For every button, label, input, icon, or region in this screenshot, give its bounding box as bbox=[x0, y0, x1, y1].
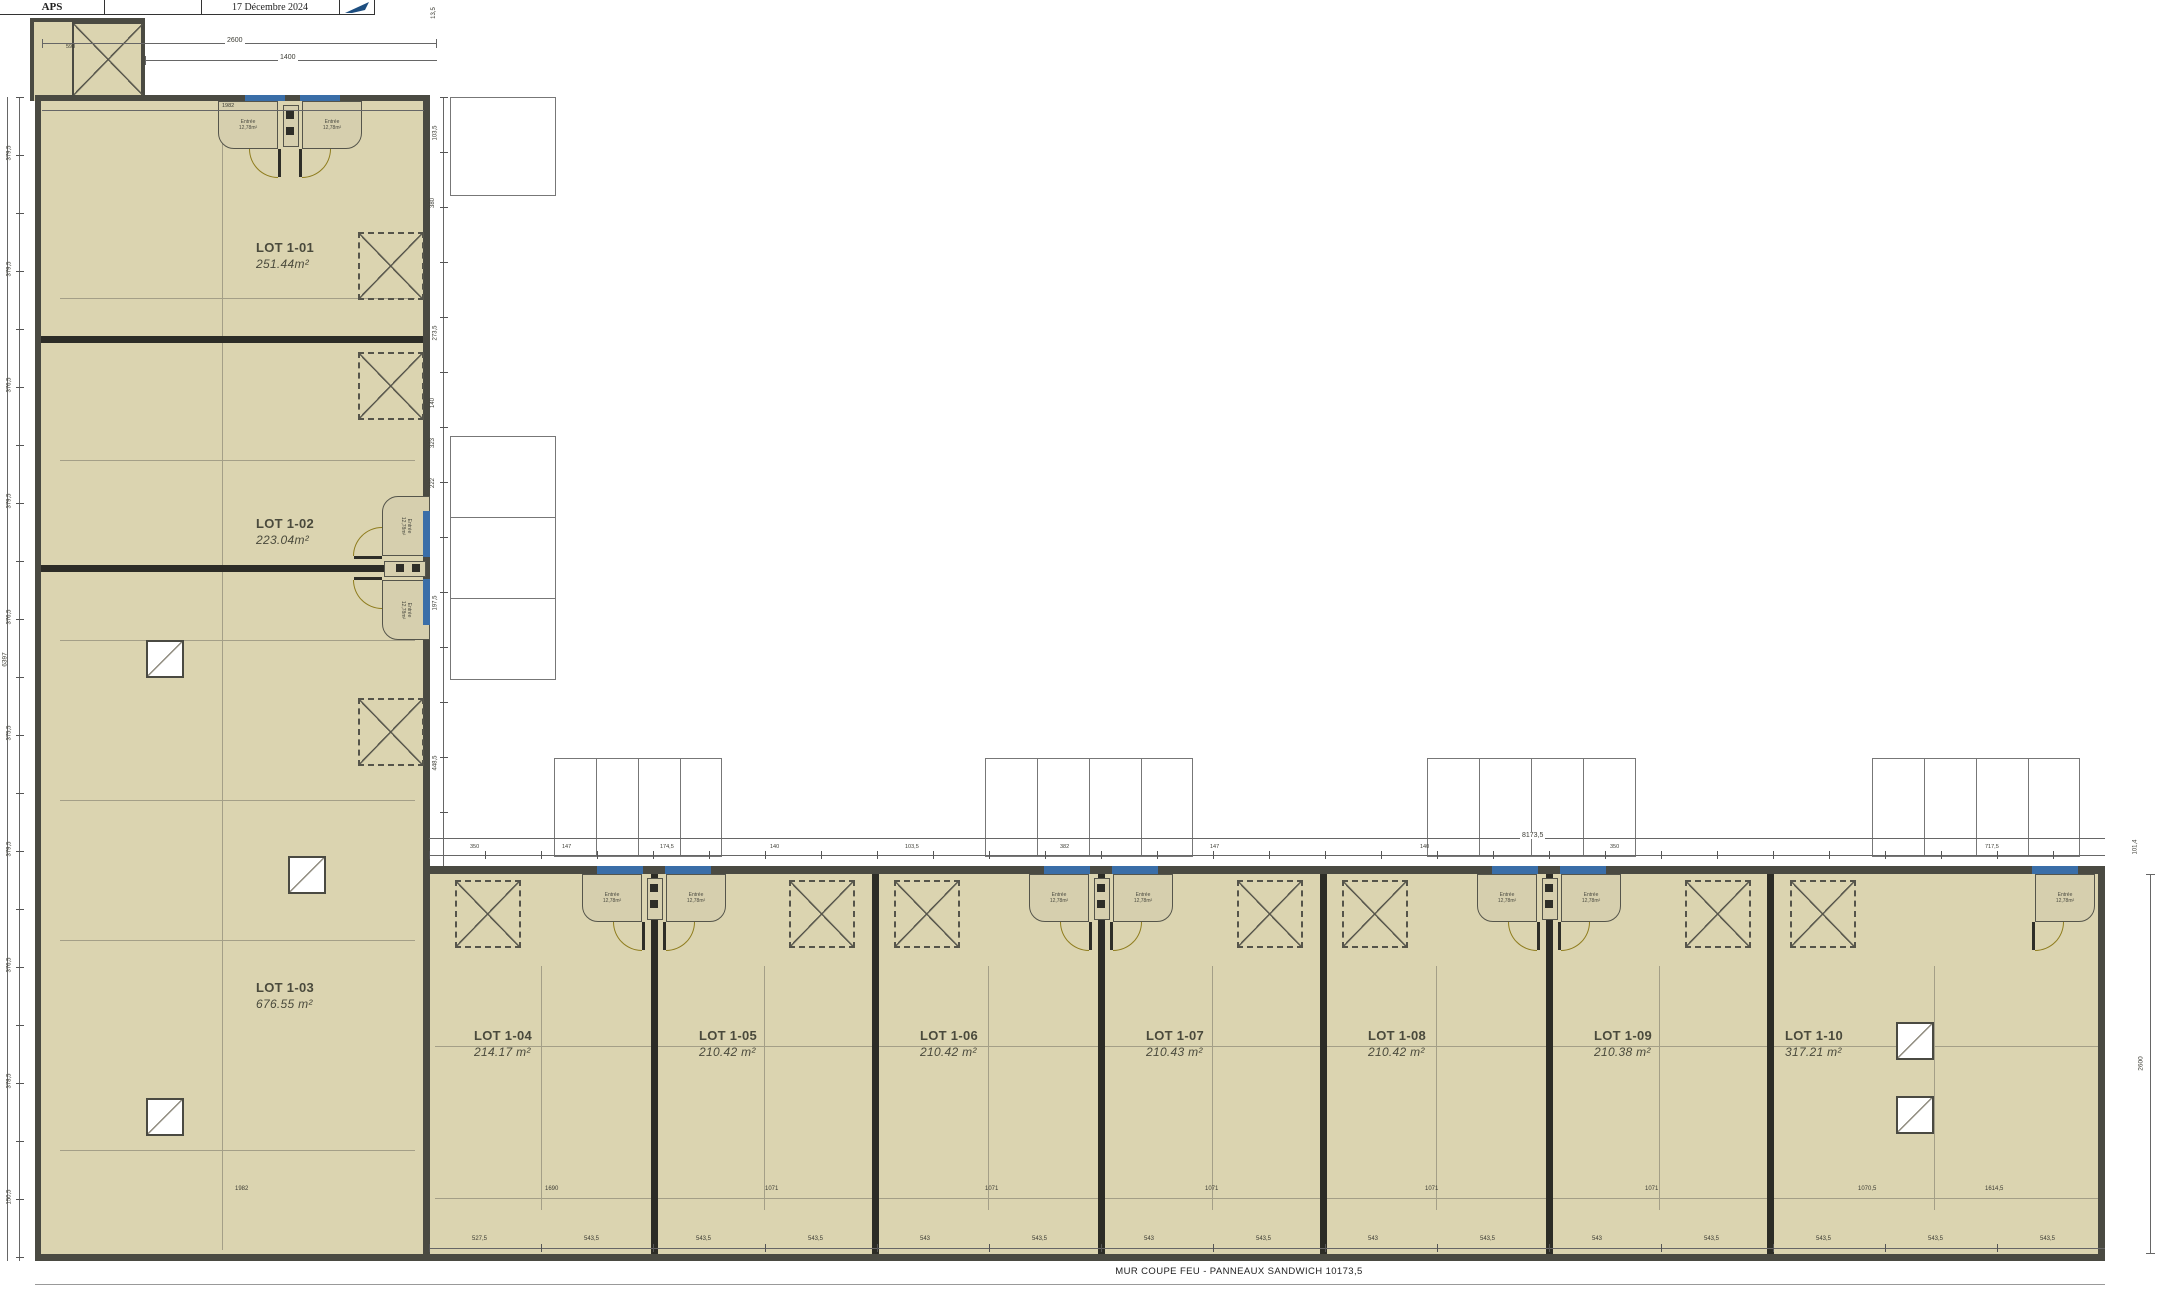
sectional-door-lot01 bbox=[358, 232, 424, 300]
dim-chain: 543,5 bbox=[1256, 1236, 1271, 1242]
sectional-door-lot06 bbox=[894, 880, 960, 948]
wall-east bbox=[2098, 866, 2105, 1261]
dim-chain: 197,5 bbox=[433, 595, 439, 610]
dim-chain: 103,5 bbox=[433, 125, 439, 140]
dim-left-total: 6397 bbox=[2, 652, 9, 666]
glazed-door-strip bbox=[1044, 866, 1090, 874]
entry-room: Entrée12,78m² bbox=[302, 101, 362, 149]
door-leaf bbox=[642, 922, 645, 950]
door-swing-arc bbox=[666, 922, 695, 951]
titleblock-border bbox=[0, 14, 375, 15]
dim-line bbox=[2150, 874, 2151, 1254]
canopy-box bbox=[1872, 758, 2080, 857]
entry-room: Entrée12,78m² bbox=[1029, 874, 1089, 922]
glazed-door-strip bbox=[1112, 866, 1158, 874]
dim-inner: 1690 bbox=[545, 1186, 558, 1192]
dim-tick bbox=[2146, 1253, 2155, 1254]
glazed-door-strip bbox=[1492, 866, 1538, 874]
dim-chain: 543 bbox=[1368, 1236, 1378, 1242]
dim-chain: 380 bbox=[430, 198, 436, 208]
door-leaf bbox=[1089, 922, 1092, 950]
lot-label-07: LOT 1-07210.43 m² bbox=[1146, 1028, 1204, 1060]
door-jamb bbox=[1097, 900, 1105, 908]
grid-line bbox=[60, 800, 415, 801]
entry-room: Entrée12,78m² bbox=[582, 874, 642, 922]
dim-chain: 543 bbox=[1144, 1236, 1154, 1242]
lot-label-10: LOT 1-10317.21 m² bbox=[1785, 1028, 1843, 1060]
glazed-door-strip bbox=[2032, 866, 2078, 874]
door-jamb bbox=[412, 564, 420, 572]
door-leaf bbox=[1110, 922, 1113, 950]
dim-tick bbox=[145, 56, 146, 65]
door-swing-arc bbox=[1113, 922, 1142, 951]
entry-room: Entrée12,78m² bbox=[1477, 874, 1537, 922]
dim-chain: 527,5 bbox=[472, 1236, 487, 1242]
porch-door-x-box bbox=[72, 22, 145, 97]
porch-wall bbox=[30, 18, 34, 101]
firewall-lot01-02 bbox=[41, 336, 423, 343]
dim-inner: 1071 bbox=[765, 1186, 778, 1192]
grid-line bbox=[435, 1198, 2098, 1199]
sectional-door-lot02 bbox=[358, 352, 424, 420]
dim-left-seg: 150,5 bbox=[7, 1189, 13, 1204]
dim-chain: 543 bbox=[1592, 1236, 1602, 1242]
door-jamb bbox=[396, 564, 404, 572]
dim-chain: 543,5 bbox=[808, 1236, 823, 1242]
dim-chain: 448,5 bbox=[433, 755, 439, 770]
wall-wing-east bbox=[423, 95, 430, 1261]
entry-room: Entrée12,78m² bbox=[1561, 874, 1621, 922]
dim-corner: 13,5 bbox=[431, 7, 437, 19]
roof-hatch bbox=[146, 1098, 184, 1136]
door-jamb bbox=[1097, 884, 1105, 892]
glazed-door-strip bbox=[300, 95, 340, 101]
dim-chain: 147 bbox=[562, 844, 571, 850]
canopy-box bbox=[985, 758, 1193, 857]
dim-wing-bottom: 1982 bbox=[235, 1186, 248, 1192]
dim-chain: 140 bbox=[430, 398, 436, 408]
dim-row-total: 8173,5 bbox=[1520, 832, 1545, 839]
firewall-lot07-08 bbox=[1320, 874, 1327, 1254]
phase-label: APS bbox=[0, 0, 104, 14]
grid-line bbox=[764, 966, 765, 1210]
sectional-door-lot03 bbox=[358, 698, 424, 766]
grid-line bbox=[60, 940, 415, 941]
dim-left-seg: 379,5 bbox=[7, 145, 13, 160]
glazed-door-strip bbox=[245, 95, 285, 101]
lot-label-05: LOT 1-05210.42 m² bbox=[699, 1028, 757, 1060]
door-leaf bbox=[1558, 922, 1561, 950]
dim-left-seg: 378,5 bbox=[7, 1073, 13, 1088]
grid-line bbox=[541, 966, 542, 1210]
entry-room: Entrée12,78m² bbox=[666, 874, 726, 922]
door-leaf bbox=[354, 577, 382, 580]
grid-line bbox=[435, 1046, 2098, 1047]
dim-chain: 350 bbox=[470, 844, 479, 850]
dim-tick bbox=[42, 39, 43, 48]
door-leaf bbox=[354, 556, 382, 559]
wall-west bbox=[35, 95, 41, 1261]
glazed-door-strip bbox=[1560, 866, 1606, 874]
sectional-door-lot05 bbox=[789, 880, 855, 948]
dim-chain: 543,5 bbox=[584, 1236, 599, 1242]
entrance-vestibule-lot08-09: Entrée12,78m² Entrée12,78m² bbox=[1474, 874, 1624, 970]
titleblock-divider bbox=[339, 0, 340, 14]
canopy-box bbox=[450, 436, 556, 680]
dim-inner-top: 1400 bbox=[278, 54, 298, 61]
canopy-box bbox=[1427, 758, 1636, 857]
dim-chain: 543,5 bbox=[1704, 1236, 1719, 1242]
dim-chain: 543,5 bbox=[696, 1236, 711, 1242]
door-swing-arc bbox=[1508, 922, 1537, 951]
dim-chain: 222 bbox=[430, 478, 436, 488]
dim-ticks bbox=[16, 97, 24, 1261]
grid-line bbox=[60, 460, 415, 461]
dim-left-seg: 376,5 bbox=[7, 377, 13, 392]
dim-chain: 543 bbox=[920, 1236, 930, 1242]
door-swing-arc bbox=[353, 527, 382, 556]
dim-wing-width: 1982 bbox=[222, 103, 234, 109]
door-swing-arc bbox=[1561, 922, 1590, 951]
dim-left-seg: 379,5 bbox=[7, 493, 13, 508]
entry-room: Entrée12,78m² bbox=[1113, 874, 1173, 922]
firewall-lot05-06 bbox=[872, 874, 879, 1254]
dim-ticks bbox=[429, 851, 2105, 859]
dim-inner: 1071 bbox=[1425, 1186, 1438, 1192]
glazed-door-strip bbox=[423, 579, 430, 625]
dim-ticks bbox=[429, 1244, 2105, 1252]
sectional-door-lot07 bbox=[1237, 880, 1303, 948]
dim-chain: 382 bbox=[1060, 844, 1069, 850]
dim-left-seg: 379,5 bbox=[7, 261, 13, 276]
dim-chain: 323 bbox=[430, 438, 436, 448]
dim-left-seg: 379,5 bbox=[7, 841, 13, 856]
dim-chain: 140 bbox=[1420, 844, 1429, 850]
roof-hatch bbox=[146, 640, 184, 678]
dim-left-seg: 376,5 bbox=[7, 957, 13, 972]
entrance-vestibule-lot06-07: Entrée12,78m² Entrée12,78m² bbox=[1026, 874, 1176, 970]
dim-chain: 147 bbox=[1210, 844, 1219, 850]
sectional-door-lot04 bbox=[455, 880, 521, 948]
dim-right-total: 2600 bbox=[2138, 1056, 2145, 1070]
roof-hatch bbox=[1896, 1022, 1934, 1060]
grid-line bbox=[1659, 966, 1660, 1210]
north-arrow-icon bbox=[343, 1, 371, 14]
dim-chain: 174,5 bbox=[660, 844, 674, 850]
dim-chain: 543,5 bbox=[1480, 1236, 1495, 1242]
entry-room: Entrée12,78m² bbox=[2035, 874, 2095, 922]
door-jamb bbox=[286, 127, 294, 135]
door-leaf bbox=[1537, 922, 1540, 950]
door-jamb bbox=[1545, 900, 1553, 908]
lot-label-02: LOT 1-02223.04m² bbox=[256, 516, 314, 548]
door-swing-arc bbox=[2035, 922, 2064, 951]
door-swing-arc bbox=[353, 580, 382, 609]
firewall-note: MUR COUPE FEU - PANNEAUX SANDWICH 10173,… bbox=[1019, 1266, 1459, 1277]
dim-chain: 543,5 bbox=[1928, 1236, 1943, 1242]
floor-plan-canvas: APS 17 Décembre 2024 bbox=[0, 0, 2171, 1300]
dim-chain: 717,5 bbox=[1985, 844, 1999, 850]
dim-chain: 273,5 bbox=[433, 325, 439, 340]
door-jamb bbox=[1545, 884, 1553, 892]
dim-overall-top: 2600 bbox=[225, 37, 245, 44]
glazed-door-strip bbox=[423, 511, 430, 557]
dim-chain: 350 bbox=[1610, 844, 1619, 850]
door-leaf bbox=[299, 149, 302, 177]
door-swing-arc bbox=[249, 149, 278, 178]
grid-line bbox=[988, 966, 989, 1210]
entrance-vestibule-lot04-05: Entrée12,78m² Entrée12,78m² bbox=[579, 874, 729, 970]
dim-line bbox=[42, 110, 424, 111]
entrance-vestibule-lot02-03: Entrée12,78m² Entrée12,78m² bbox=[334, 493, 430, 643]
dim-porch: 598 bbox=[66, 44, 75, 50]
dim-chain: 543,5 bbox=[1032, 1236, 1047, 1242]
door-swing-arc bbox=[613, 922, 642, 951]
entrance-vestibule-lot01: Entrée12,78m² Entrée12,78m² bbox=[215, 101, 365, 197]
note-underline bbox=[35, 1284, 2105, 1285]
lot-label-09: LOT 1-09210.38 m² bbox=[1594, 1028, 1652, 1060]
date-label: 17 Décembre 2024 bbox=[201, 0, 339, 14]
lot-label-01: LOT 1-01251.44m² bbox=[256, 240, 314, 272]
lot-label-03: LOT 1-03676.55 m² bbox=[256, 980, 314, 1012]
dim-chain: 543,5 bbox=[2040, 1236, 2055, 1242]
roof-hatch bbox=[288, 856, 326, 894]
dim-corner-right: 101,4 bbox=[2133, 839, 2139, 854]
lot-label-08: LOT 1-08210.42 m² bbox=[1368, 1028, 1426, 1060]
grid-line bbox=[1212, 966, 1213, 1210]
firewall-lot09-10 bbox=[1767, 874, 1774, 1254]
titleblock-divider bbox=[104, 0, 105, 14]
dim-tick bbox=[2146, 874, 2155, 875]
sectional-door-lot08 bbox=[1342, 880, 1408, 948]
dim-tick bbox=[436, 39, 437, 48]
door-jamb bbox=[286, 111, 294, 119]
canopy-box bbox=[554, 758, 722, 857]
lot-label-04: LOT 1-04214.17 m² bbox=[474, 1028, 532, 1060]
grid-line bbox=[222, 110, 223, 1250]
door-jamb bbox=[650, 884, 658, 892]
dim-line bbox=[429, 838, 2105, 839]
glazed-door-strip bbox=[665, 866, 711, 874]
sectional-door-lot10 bbox=[1790, 880, 1856, 948]
roof-hatch bbox=[1896, 1096, 1934, 1134]
dim-left-seg: 375,5 bbox=[7, 725, 13, 740]
dim-inner: 1071 bbox=[1205, 1186, 1218, 1192]
glazed-door-strip bbox=[597, 866, 643, 874]
dim-chain: 140 bbox=[770, 844, 779, 850]
door-swing-arc bbox=[302, 149, 331, 178]
dim-chain: 103,5 bbox=[905, 844, 919, 850]
grid-line bbox=[1934, 966, 1935, 1210]
door-swing-arc bbox=[1060, 922, 1089, 951]
door-leaf bbox=[663, 922, 666, 950]
door-leaf bbox=[2032, 922, 2035, 950]
wall-south bbox=[35, 1254, 2105, 1261]
sectional-door-lot09 bbox=[1685, 880, 1751, 948]
lot-label-06: LOT 1-06210.42 m² bbox=[920, 1028, 978, 1060]
dim-inner: 1614,5 bbox=[1985, 1186, 2003, 1192]
dim-inner: 1070,5 bbox=[1858, 1186, 1876, 1192]
dim-inner: 1071 bbox=[985, 1186, 998, 1192]
titleblock-divider bbox=[374, 0, 375, 14]
entrance-vestibule-lot10: Entrée12,78m² bbox=[2020, 874, 2098, 970]
dim-inner: 1071 bbox=[1645, 1186, 1658, 1192]
dim-left-seg: 376,5 bbox=[7, 609, 13, 624]
grid-line bbox=[1436, 966, 1437, 1210]
door-leaf bbox=[278, 149, 281, 177]
dim-ticks bbox=[440, 97, 448, 866]
door-jamb bbox=[650, 900, 658, 908]
dim-chain: 543,5 bbox=[1816, 1236, 1831, 1242]
canopy-box bbox=[450, 97, 556, 196]
grid-line bbox=[60, 1150, 415, 1151]
